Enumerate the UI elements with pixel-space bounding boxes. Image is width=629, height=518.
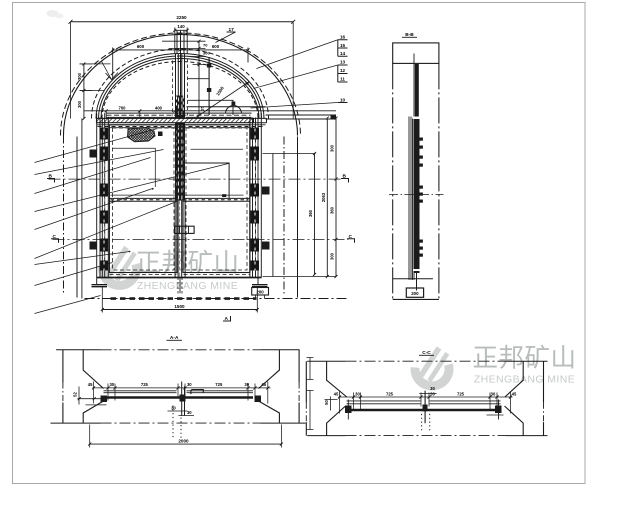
- svg-text:300: 300: [330, 252, 335, 260]
- svg-text:300: 300: [203, 51, 210, 56]
- svg-text:1500: 1500: [174, 304, 185, 309]
- svg-text:45: 45: [334, 391, 339, 396]
- svg-text:13: 13: [340, 60, 346, 65]
- svg-text:360: 360: [308, 209, 313, 217]
- svg-text:2250: 2250: [176, 15, 187, 20]
- svg-text:12: 12: [340, 68, 346, 73]
- svg-text:11: 11: [340, 77, 345, 82]
- svg-text:45: 45: [88, 382, 93, 387]
- svg-text:25: 25: [200, 106, 205, 111]
- svg-text:300: 300: [330, 144, 335, 152]
- svg-text:30: 30: [430, 386, 435, 391]
- svg-text:600: 600: [137, 44, 145, 49]
- svg-text:2000: 2000: [178, 439, 189, 444]
- svg-text:45: 45: [512, 391, 517, 396]
- svg-text:ZHENGBANG MINE: ZHENGBANG MINE: [137, 280, 238, 292]
- svg-text:725: 725: [457, 391, 465, 396]
- svg-text:200: 200: [411, 291, 419, 296]
- svg-text:725: 725: [386, 391, 394, 396]
- svg-text:45: 45: [261, 382, 266, 387]
- svg-text:725: 725: [215, 382, 223, 387]
- svg-text:700: 700: [119, 105, 127, 110]
- svg-text:10: 10: [340, 97, 346, 102]
- svg-text:16: 16: [340, 35, 346, 40]
- svg-text:30: 30: [244, 382, 249, 387]
- svg-text:正邦矿山: 正邦矿山: [135, 250, 239, 278]
- svg-text:30: 30: [187, 410, 192, 415]
- svg-text:正邦矿山: 正邦矿山: [472, 345, 576, 373]
- svg-text:15: 15: [340, 43, 346, 48]
- svg-text:30: 30: [355, 391, 360, 396]
- svg-text:30: 30: [187, 382, 192, 387]
- svg-text:30: 30: [109, 382, 114, 387]
- svg-text:52: 52: [73, 392, 78, 397]
- svg-text:400: 400: [155, 105, 163, 110]
- svg-text:ZHENGBANG MINE: ZHENGBANG MINE: [474, 374, 575, 386]
- svg-text:300: 300: [77, 100, 82, 108]
- svg-text:2063: 2063: [321, 192, 326, 202]
- svg-text:140: 140: [177, 24, 185, 29]
- svg-text:14: 14: [340, 51, 346, 56]
- svg-text:300: 300: [77, 72, 82, 80]
- svg-text:200: 200: [256, 289, 264, 294]
- svg-text:30: 30: [491, 391, 496, 396]
- svg-text:50: 50: [324, 400, 329, 405]
- svg-text:360: 360: [330, 206, 335, 214]
- svg-text:725: 725: [141, 382, 149, 387]
- svg-text:70: 70: [203, 43, 208, 48]
- svg-text:1500: 1500: [215, 85, 225, 96]
- svg-text:600: 600: [212, 44, 220, 49]
- svg-text:30: 30: [171, 406, 176, 411]
